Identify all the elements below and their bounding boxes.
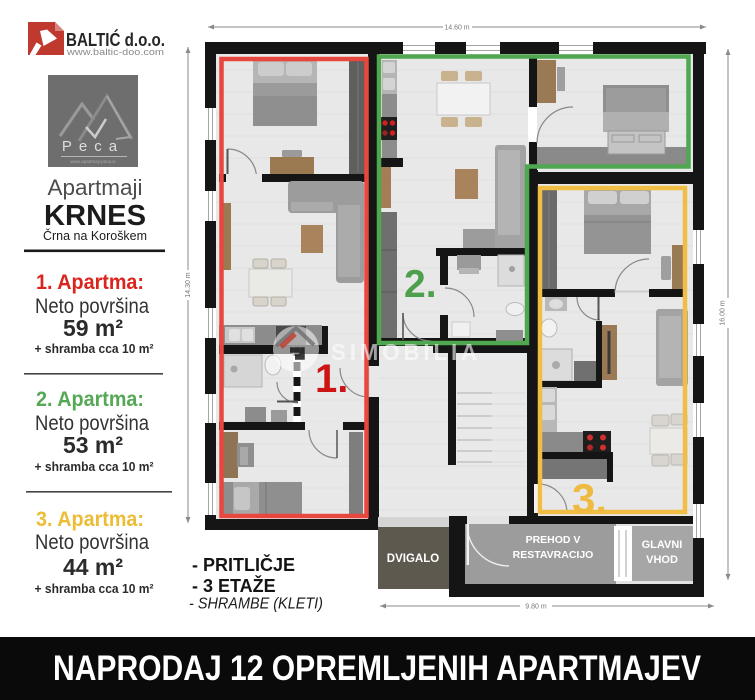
svg-text:+ shramba cca 10 m²: + shramba cca 10 m² (35, 341, 155, 356)
svg-text:Neto površina: Neto površina (35, 531, 149, 554)
svg-text:PREHOD V: PREHOD V (526, 534, 581, 546)
svg-text:VHOD: VHOD (646, 554, 678, 566)
svg-text:1. Apartma:: 1. Apartma: (36, 270, 144, 294)
svg-text:www.baltic-doo.com: www.baltic-doo.com (66, 47, 164, 58)
svg-text:16.00 m: 16.00 m (720, 300, 727, 325)
svg-text:DVIGALO: DVIGALO (387, 553, 439, 565)
svg-text:Apartmaji: Apartmaji (48, 175, 143, 200)
svg-text:14.60 m: 14.60 m (444, 25, 469, 32)
svg-text:44 m²: 44 m² (63, 554, 123, 580)
svg-text:NAPRODAJ 12 OPREMLJENIH APARTM: NAPRODAJ 12 OPREMLJENIH APARTMAJEV (53, 649, 702, 688)
svg-text:- SHRAMBE (KLETI): - SHRAMBE (KLETI) (189, 596, 323, 613)
svg-text:3.: 3. (572, 475, 607, 522)
svg-text:Črna na Koroškem: Črna na Koroškem (43, 228, 147, 243)
svg-text:+ shramba cca 10 m²: + shramba cca 10 m² (35, 581, 155, 596)
svg-text:www.apartmaji-peca.si: www.apartmaji-peca.si (70, 159, 115, 164)
svg-text:- 3 ETAŽE: - 3 ETAŽE (192, 575, 276, 596)
svg-text:53 m²: 53 m² (63, 432, 123, 458)
svg-text:59 m²: 59 m² (63, 315, 123, 341)
svg-text:RESTAVRACIJO: RESTAVRACIJO (513, 549, 594, 561)
svg-text:GLAVNI: GLAVNI (642, 539, 683, 551)
svg-text:9.80 m: 9.80 m (525, 604, 547, 611)
svg-text:KRNES: KRNES (44, 200, 146, 232)
svg-text:SIMOBILIA: SIMOBILIA (331, 339, 481, 365)
svg-text:2. Apartma:: 2. Apartma: (36, 387, 144, 411)
svg-text:3. Apartma:: 3. Apartma: (36, 507, 144, 531)
svg-text:- PRITLIČJE: - PRITLIČJE (192, 554, 295, 575)
svg-text:Peca: Peca (62, 138, 124, 155)
svg-text:14.30 m: 14.30 m (185, 272, 192, 297)
svg-text:+ shramba cca 10 m²: + shramba cca 10 m² (35, 459, 155, 474)
svg-text:2.: 2. (404, 263, 437, 306)
